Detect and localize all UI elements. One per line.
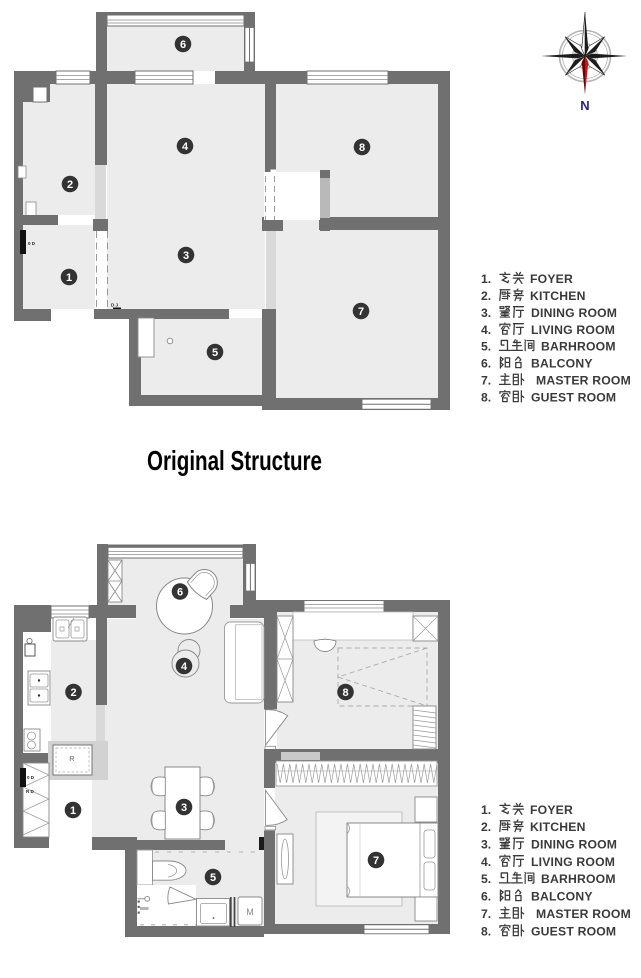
svg-text:5.: 5. bbox=[481, 872, 491, 886]
svg-text:5: 5 bbox=[212, 347, 218, 359]
svg-text:FOYER: FOYER bbox=[530, 803, 573, 817]
svg-text:MASTER ROOM: MASTER ROOM bbox=[536, 907, 631, 921]
svg-text:Original Structure: Original Structure bbox=[147, 445, 322, 476]
svg-text:5.: 5. bbox=[481, 340, 491, 354]
svg-text:2: 2 bbox=[70, 687, 76, 699]
svg-text:1: 1 bbox=[66, 272, 72, 284]
svg-text:2.: 2. bbox=[481, 820, 491, 834]
svg-text:BARHROOM: BARHROOM bbox=[541, 340, 616, 354]
svg-text:D J: D J bbox=[111, 303, 119, 308]
svg-text:5: 5 bbox=[210, 872, 216, 884]
svg-text:6: 6 bbox=[180, 39, 186, 51]
svg-text:LIVING ROOM: LIVING ROOM bbox=[531, 855, 615, 869]
svg-text:DINING ROOM: DINING ROOM bbox=[531, 838, 617, 852]
svg-text:GUEST ROOM: GUEST ROOM bbox=[531, 925, 616, 939]
svg-text:3: 3 bbox=[183, 250, 189, 262]
svg-text:2.: 2. bbox=[481, 289, 491, 303]
svg-text:1.: 1. bbox=[481, 803, 491, 817]
svg-text:KITCHEN: KITCHEN bbox=[530, 289, 586, 303]
svg-text:6: 6 bbox=[177, 587, 183, 599]
svg-text:LIVING ROOM: LIVING ROOM bbox=[531, 323, 615, 337]
svg-text:2: 2 bbox=[67, 179, 73, 191]
svg-text:M: M bbox=[246, 907, 254, 917]
svg-text:8: 8 bbox=[359, 142, 365, 154]
svg-text:MASTER ROOM: MASTER ROOM bbox=[536, 374, 631, 388]
svg-text:8.: 8. bbox=[481, 925, 491, 939]
svg-text:7: 7 bbox=[373, 855, 379, 867]
svg-text:6.: 6. bbox=[481, 357, 491, 371]
svg-text:7.: 7. bbox=[481, 907, 491, 921]
svg-text:8: 8 bbox=[342, 687, 348, 699]
svg-text:N: N bbox=[580, 98, 589, 113]
svg-text:1.: 1. bbox=[481, 272, 491, 286]
svg-text:7.: 7. bbox=[481, 374, 491, 388]
svg-text:BALCONY: BALCONY bbox=[531, 890, 593, 904]
svg-text:GUEST ROOM: GUEST ROOM bbox=[531, 391, 616, 405]
svg-text:0 D: 0 D bbox=[28, 241, 36, 246]
svg-text:0 D: 0 D bbox=[27, 775, 35, 780]
svg-text:3.: 3. bbox=[481, 306, 491, 320]
svg-text:1: 1 bbox=[70, 805, 76, 817]
svg-text:3: 3 bbox=[181, 802, 187, 814]
svg-text:6.: 6. bbox=[481, 890, 491, 904]
svg-text:7: 7 bbox=[358, 306, 364, 318]
svg-text:4.: 4. bbox=[481, 855, 491, 869]
svg-text:DINING ROOM: DINING ROOM bbox=[531, 306, 617, 320]
svg-text:4: 4 bbox=[182, 141, 189, 153]
svg-text:BALCONY: BALCONY bbox=[531, 357, 593, 371]
svg-text:R: R bbox=[69, 754, 75, 763]
svg-text:4.: 4. bbox=[481, 323, 491, 337]
svg-text:8.: 8. bbox=[481, 391, 491, 405]
svg-text:BARHROOM: BARHROOM bbox=[541, 872, 616, 886]
svg-text:FOYER: FOYER bbox=[530, 272, 573, 286]
svg-text:3.: 3. bbox=[481, 838, 491, 852]
svg-text:R D: R D bbox=[26, 789, 35, 794]
svg-text:4: 4 bbox=[181, 661, 188, 673]
svg-text:KITCHEN: KITCHEN bbox=[530, 820, 586, 834]
